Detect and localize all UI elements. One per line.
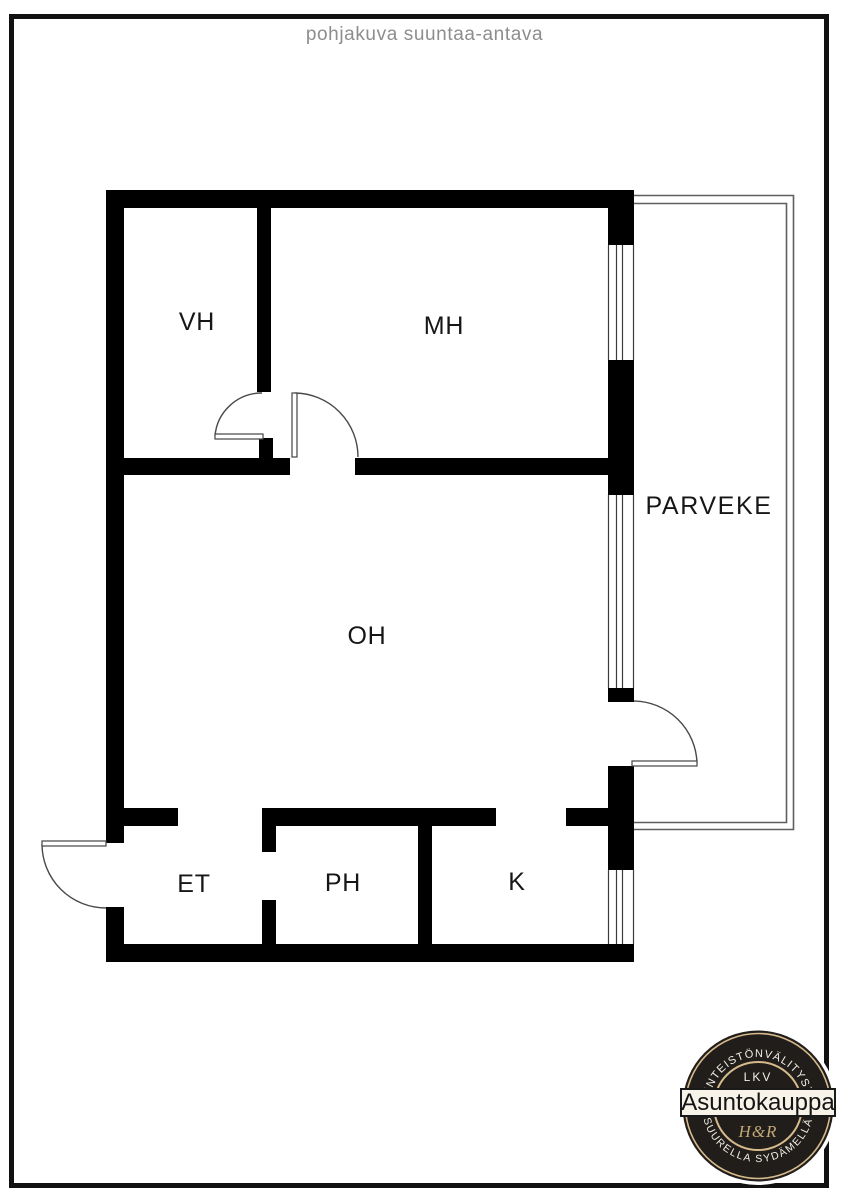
window-mh [608,245,634,360]
badge-monogram: H&R [738,1122,778,1141]
wall-segment [608,688,634,702]
vh-door [215,393,263,439]
brokerage-badge: KIINTEISTÖNVÄLITYSTÄ LKV Asuntokauppa H&… [679,1027,837,1185]
wall-segment [124,458,290,475]
page: pohjakuva suuntaa-antava [0,0,849,1200]
window-glass [608,870,634,944]
wall-segment [106,808,178,826]
door-leaf [292,393,297,457]
room-label-vh: VH [179,308,215,336]
wall-segment [608,766,634,870]
door-leaf [632,761,697,766]
room-label-oh: OH [347,622,386,650]
room-label-ph: PH [325,869,361,897]
wall-segment [566,808,608,826]
room-label-k: K [508,868,525,896]
wall-segment [106,190,124,843]
door-swing-arc [295,393,358,457]
wall-segment [106,190,634,208]
door-leaf [42,841,106,846]
room-label-mh: MH [424,312,464,340]
wall-segment [262,808,496,826]
door-leaf [215,434,263,439]
wall-segment [257,208,271,392]
door-swing-arc [42,844,106,908]
mh-door [292,393,358,457]
window-glass [608,245,634,360]
wall-segment [355,458,608,475]
wall-segment [259,438,273,460]
wall-segment [608,190,634,245]
room-label-et: ET [177,870,211,898]
window-k [608,870,634,944]
badge-license-text: LKV [744,1070,773,1084]
room-label-parveke: PARVEKE [646,492,773,520]
door-swing-arc [634,701,697,763]
walls [106,190,634,962]
wall-segment [106,944,634,962]
window-glass [608,495,634,688]
badge-company-name: Asuntokauppa [681,1089,835,1116]
wall-segment [608,360,634,495]
door-swing-arc [215,393,262,436]
entrance-door [42,841,106,908]
floor-plan: VH MH OH PARVEKE ET PH K [0,0,849,1200]
wall-segment [262,826,276,852]
wall-segment [262,900,276,944]
wall-segment [418,826,432,944]
window-oh [608,495,634,688]
balcony-door [632,701,697,766]
